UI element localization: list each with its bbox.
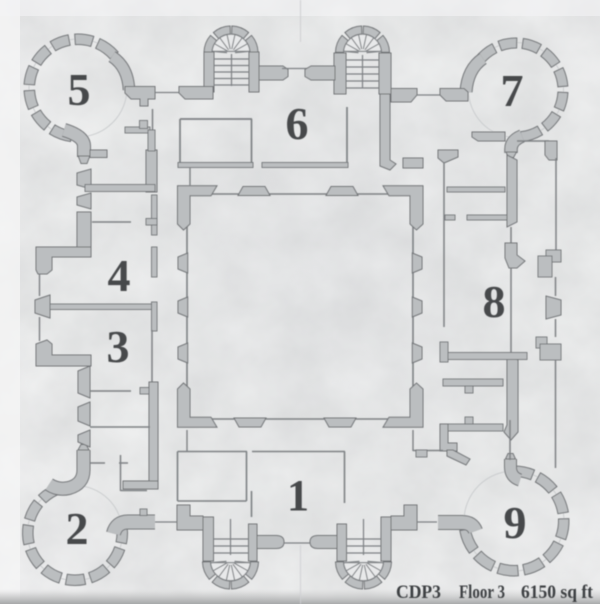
svg-text:7: 7 — [501, 65, 524, 116]
svg-text:6: 6 — [286, 98, 309, 149]
svg-text:Floor 3: Floor 3 — [459, 582, 505, 603]
svg-text:8: 8 — [483, 276, 506, 327]
svg-text:6150 sq ft: 6150 sq ft — [521, 582, 594, 603]
svg-text:2: 2 — [66, 503, 89, 554]
svg-text:4: 4 — [108, 250, 131, 301]
svg-text:5: 5 — [68, 64, 91, 115]
svg-text:1: 1 — [287, 471, 309, 520]
svg-text:CDP3: CDP3 — [396, 582, 441, 603]
svg-text:9: 9 — [504, 497, 527, 548]
svg-text:3: 3 — [107, 321, 130, 372]
